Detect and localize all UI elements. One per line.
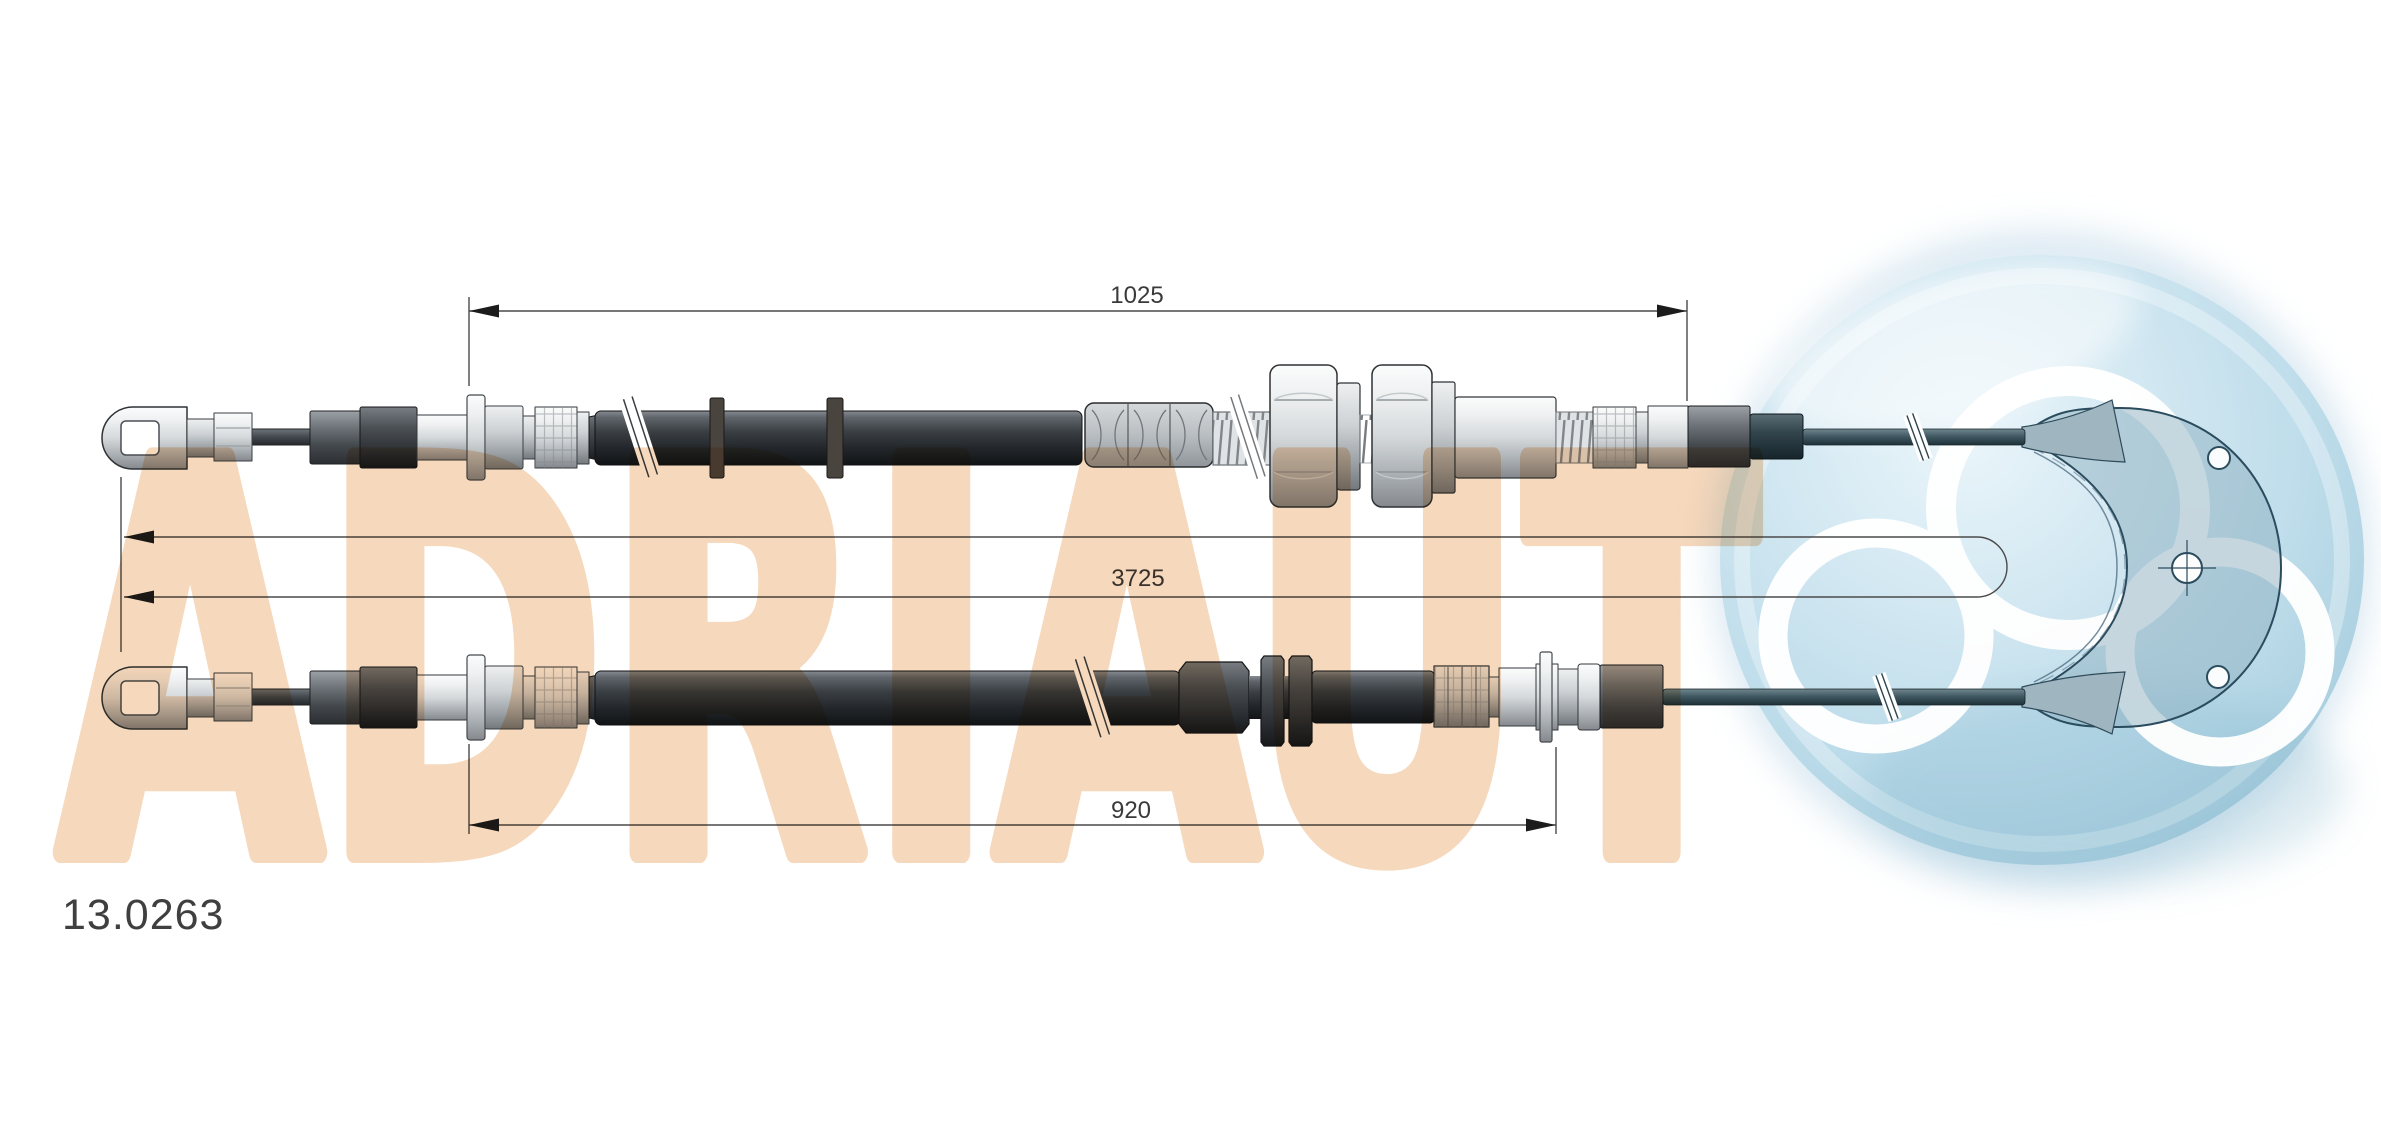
brake-cable-technical-drawing: 1025 3725 920 13.0263 ADRIAUT (0, 0, 2381, 1134)
arrow-left-icon (469, 305, 499, 318)
diagram-canvas: 1025 3725 920 13.0263 ADRIAUT (0, 0, 2381, 1134)
brand-logo-emblem (1714, 226, 2370, 888)
plate-hole-bottom (2207, 666, 2229, 688)
plate-hole-top (2208, 447, 2230, 469)
dimension-label-1025: 1025 (1110, 282, 1163, 309)
arrow-right-icon (1657, 305, 1687, 318)
watermark-brand-text: ADRIAUT (58, 352, 1760, 980)
